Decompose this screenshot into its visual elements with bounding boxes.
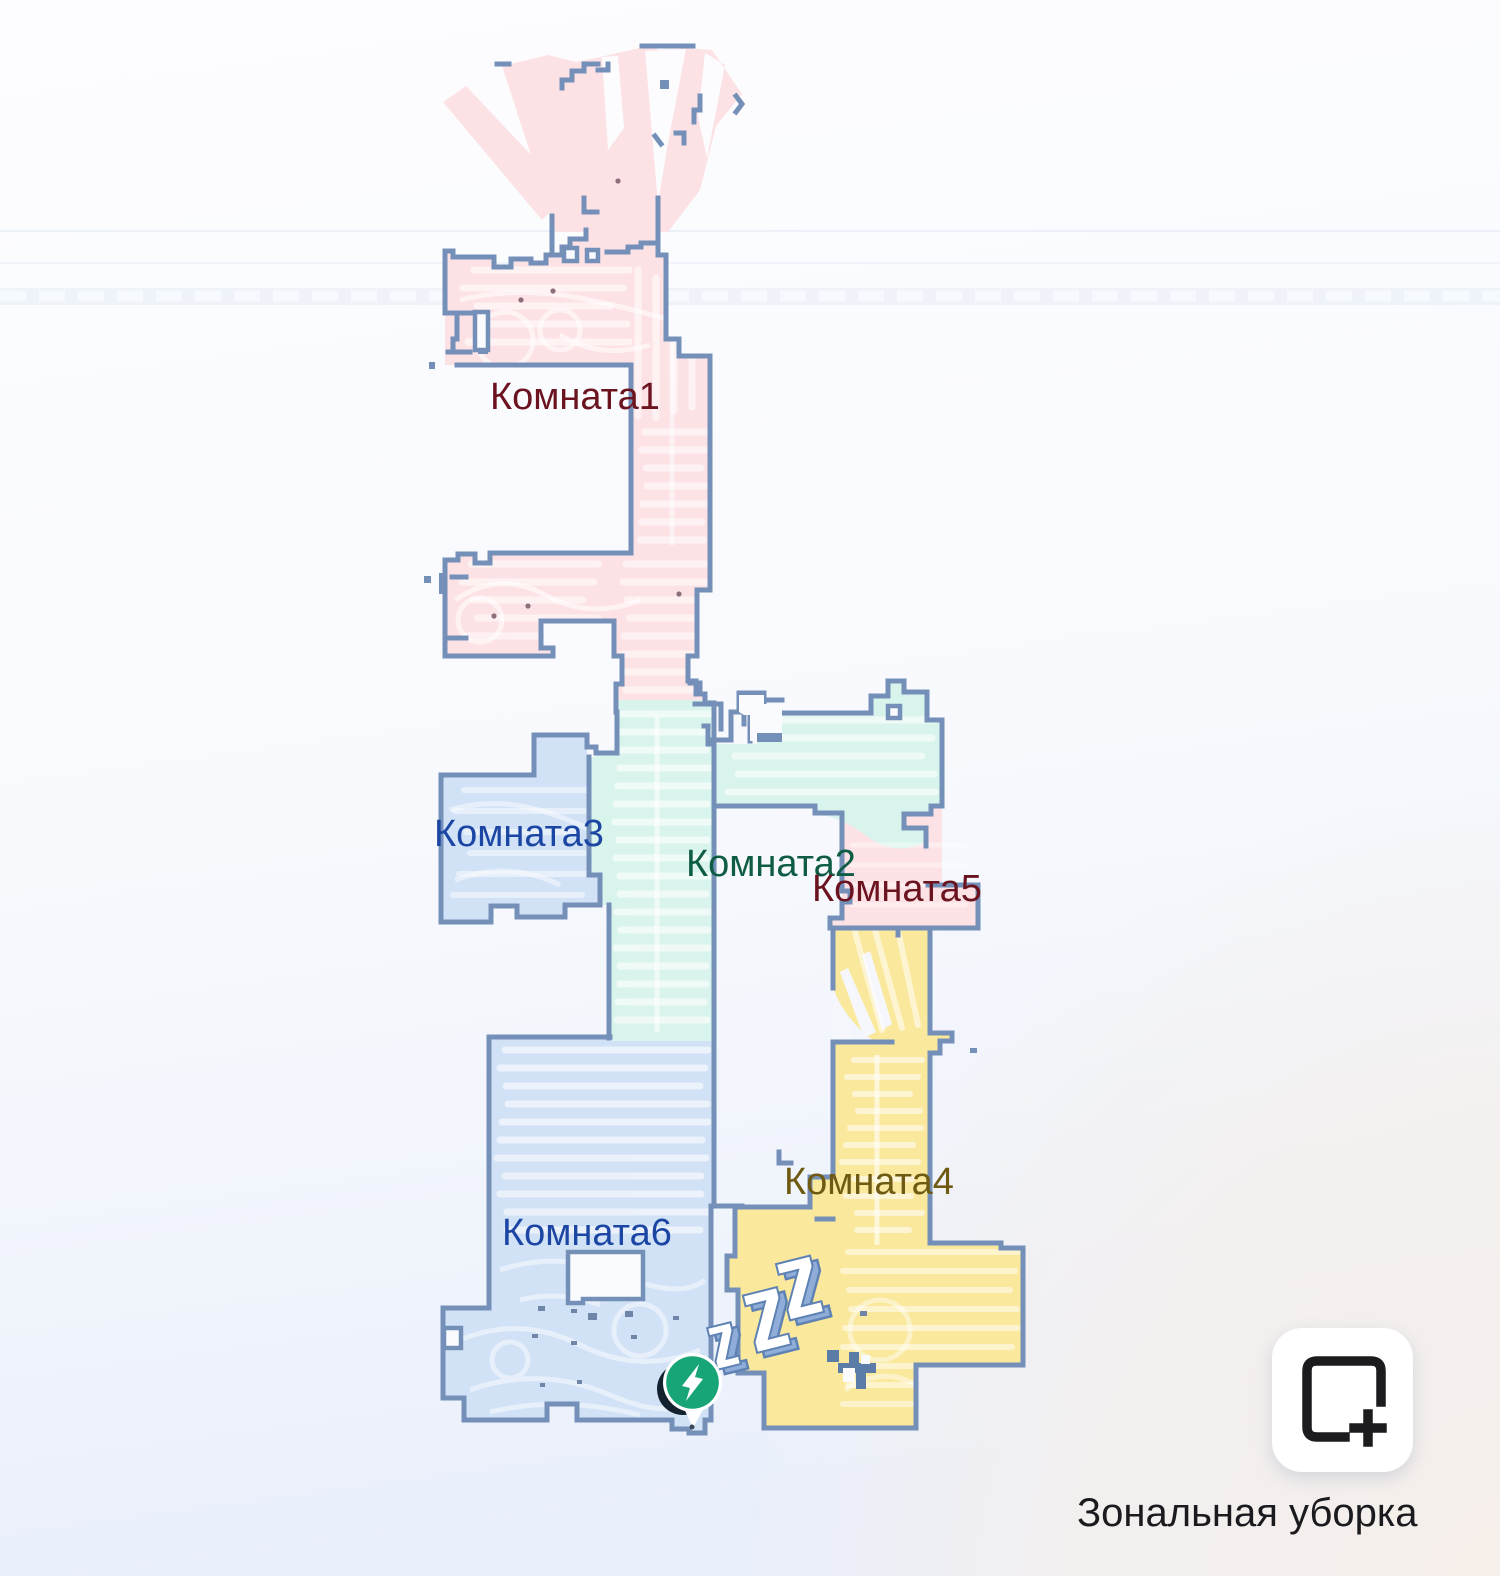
svg-text:Комната5: Комната5 xyxy=(812,868,982,910)
svg-text:Комната4: Комната4 xyxy=(784,1161,954,1203)
svg-text:Комната6: Комната6 xyxy=(502,1212,672,1254)
svg-text:Комната1: Комната1 xyxy=(490,376,660,418)
svg-text:Зональная уборка: Зональная уборка xyxy=(1077,1491,1418,1535)
svg-text:Комната3: Комната3 xyxy=(434,813,604,855)
